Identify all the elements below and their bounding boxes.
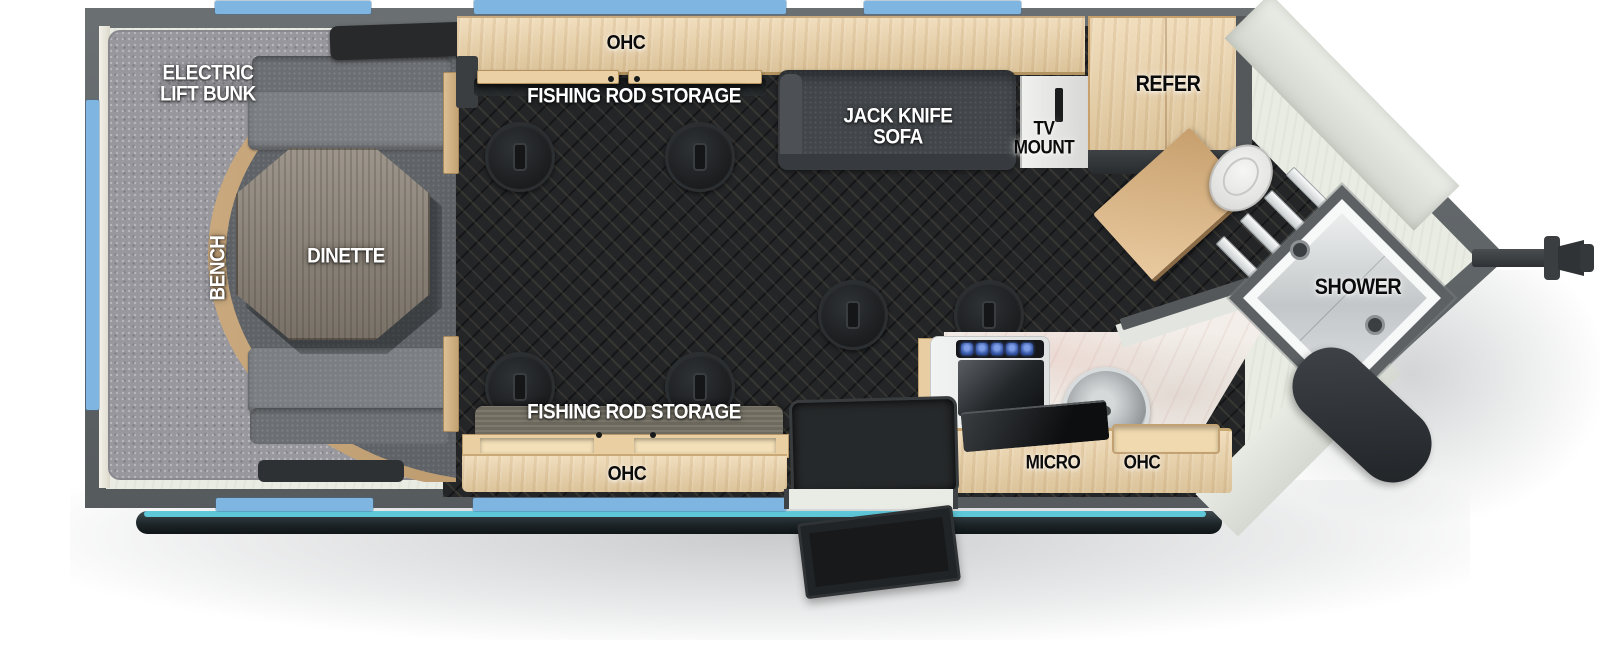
window-bottom-2 — [473, 498, 786, 511]
hitch-coupler-plate — [1544, 236, 1560, 280]
rod-rail-knob — [650, 432, 656, 438]
label-rod-storage-top: FISHING ROD STORAGE — [527, 85, 741, 106]
rod-rail-knob — [634, 76, 640, 82]
rod-tray — [480, 438, 594, 453]
label-dinette: DINETTE — [307, 245, 385, 266]
bunk-board — [329, 22, 468, 61]
label-ohc-kitchen: OHC — [1124, 453, 1161, 472]
label-micro: MICRO — [1026, 453, 1081, 472]
hitch-coupler-tip — [1580, 244, 1594, 272]
hitch-tongue — [1472, 249, 1550, 267]
bench-backrest-top — [252, 56, 452, 96]
rod-tray — [634, 438, 776, 453]
window-rear — [86, 100, 99, 410]
window-top-1 — [215, 1, 371, 14]
burner — [991, 343, 1003, 355]
entry-door-mat — [789, 396, 960, 498]
floor-anchor — [818, 280, 888, 350]
window-top-2 — [474, 0, 786, 14]
awning-stripe — [144, 511, 1206, 517]
window-bottom-1 — [216, 498, 373, 511]
burner — [1006, 343, 1018, 355]
electric-lift-bunk-area — [106, 28, 456, 482]
cabinet-tray — [1112, 424, 1220, 454]
burner — [976, 343, 988, 355]
label-ohc-bottom: OHC — [608, 464, 647, 484]
label-rod-storage-bottom: FISHING ROD STORAGE — [527, 401, 741, 422]
bench-wood-trim-bottom — [443, 336, 459, 432]
floor-anchor — [485, 122, 555, 192]
rod-storage-rail — [628, 70, 762, 84]
shower-drain — [1290, 240, 1310, 260]
bench-base-tray — [258, 460, 404, 482]
bench-front-bottom — [250, 408, 450, 444]
label-jack-knife-sofa: JACK KNIFE SOFA — [844, 106, 953, 149]
entry-door-opening — [788, 489, 954, 509]
overhead-cabinet-top — [457, 16, 1085, 75]
shower-drain — [1365, 315, 1385, 335]
rod-rail-knob — [596, 432, 602, 438]
burner — [961, 343, 973, 355]
door-jamb — [953, 489, 958, 509]
burner — [1021, 343, 1033, 355]
rod-rail-knob — [608, 76, 614, 82]
floorplan: ELECTRIC LIFT BUNK BENCH DINETTE OHC FIS… — [0, 0, 1600, 671]
label-refer: REFER — [1136, 73, 1201, 95]
door-jamb — [784, 489, 789, 509]
label-shower: SHOWER — [1315, 276, 1401, 298]
tv-bracket — [1055, 88, 1063, 122]
label-bench: BENCH — [207, 236, 228, 301]
floor-anchor — [665, 122, 735, 192]
bench-seat-top — [248, 92, 452, 150]
window-top-3 — [864, 1, 1021, 14]
bench-seat-bottom — [248, 348, 452, 414]
label-tv-mount: TV MOUNT — [1014, 120, 1074, 159]
label-ohc-top: OHC — [607, 33, 646, 53]
rod-storage-rail — [477, 70, 619, 84]
label-electric-lift-bunk: ELECTRIC LIFT BUNK — [160, 63, 256, 106]
